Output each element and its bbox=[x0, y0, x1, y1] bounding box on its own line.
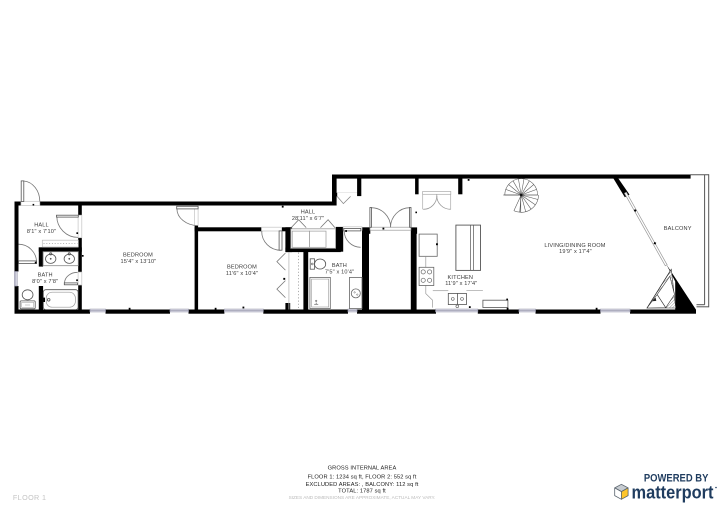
svg-text:SIZES AND DIMENSIONS ARE APPRO: SIZES AND DIMENSIONS ARE APPROXIMATE, AC… bbox=[289, 495, 436, 500]
svg-text:matterport: matterport bbox=[632, 481, 714, 502]
svg-text:BEDROOM: BEDROOM bbox=[227, 265, 257, 271]
svg-text:GROSS INTERNAL AREA: GROSS INTERNAL AREA bbox=[328, 466, 397, 472]
svg-text:19'9" x 17'4": 19'9" x 17'4" bbox=[559, 249, 592, 255]
svg-text:11'9" x 17'4": 11'9" x 17'4" bbox=[445, 281, 477, 287]
svg-text:BATH: BATH bbox=[38, 273, 53, 279]
svg-text:HALL: HALL bbox=[301, 209, 316, 215]
svg-text:8'1" x 7'10": 8'1" x 7'10" bbox=[27, 229, 56, 235]
svg-text:KITCHEN: KITCHEN bbox=[447, 275, 473, 281]
svg-text:FLOOR 1: FLOOR 1 bbox=[13, 493, 47, 502]
svg-text:15'4" x 13'10": 15'4" x 13'10" bbox=[121, 259, 157, 265]
svg-text:TOTAL: 1787 sq ft: TOTAL: 1787 sq ft bbox=[338, 488, 386, 494]
svg-text:EXCLUDED AREAS: , BALCONY: 112: EXCLUDED AREAS: , BALCONY: 112 sq ft bbox=[306, 482, 419, 488]
svg-text:HALL: HALL bbox=[34, 223, 49, 229]
svg-text:FLOOR 1: 1234 sq ft, FLOOR 2:: FLOOR 1: 1234 sq ft, FLOOR 2: 552 sq ft bbox=[308, 474, 417, 480]
svg-text:BATH: BATH bbox=[332, 263, 347, 269]
svg-text:11'6" x 10'4": 11'6" x 10'4" bbox=[226, 271, 258, 277]
svg-text:7'5" x 10'4": 7'5" x 10'4" bbox=[325, 270, 354, 276]
svg-text:BALCONY: BALCONY bbox=[664, 226, 692, 232]
svg-text:8'0" x 7'8": 8'0" x 7'8" bbox=[32, 279, 58, 285]
svg-text:28'11" x 6'7": 28'11" x 6'7" bbox=[292, 216, 324, 222]
svg-text:BEDROOM: BEDROOM bbox=[123, 253, 153, 259]
